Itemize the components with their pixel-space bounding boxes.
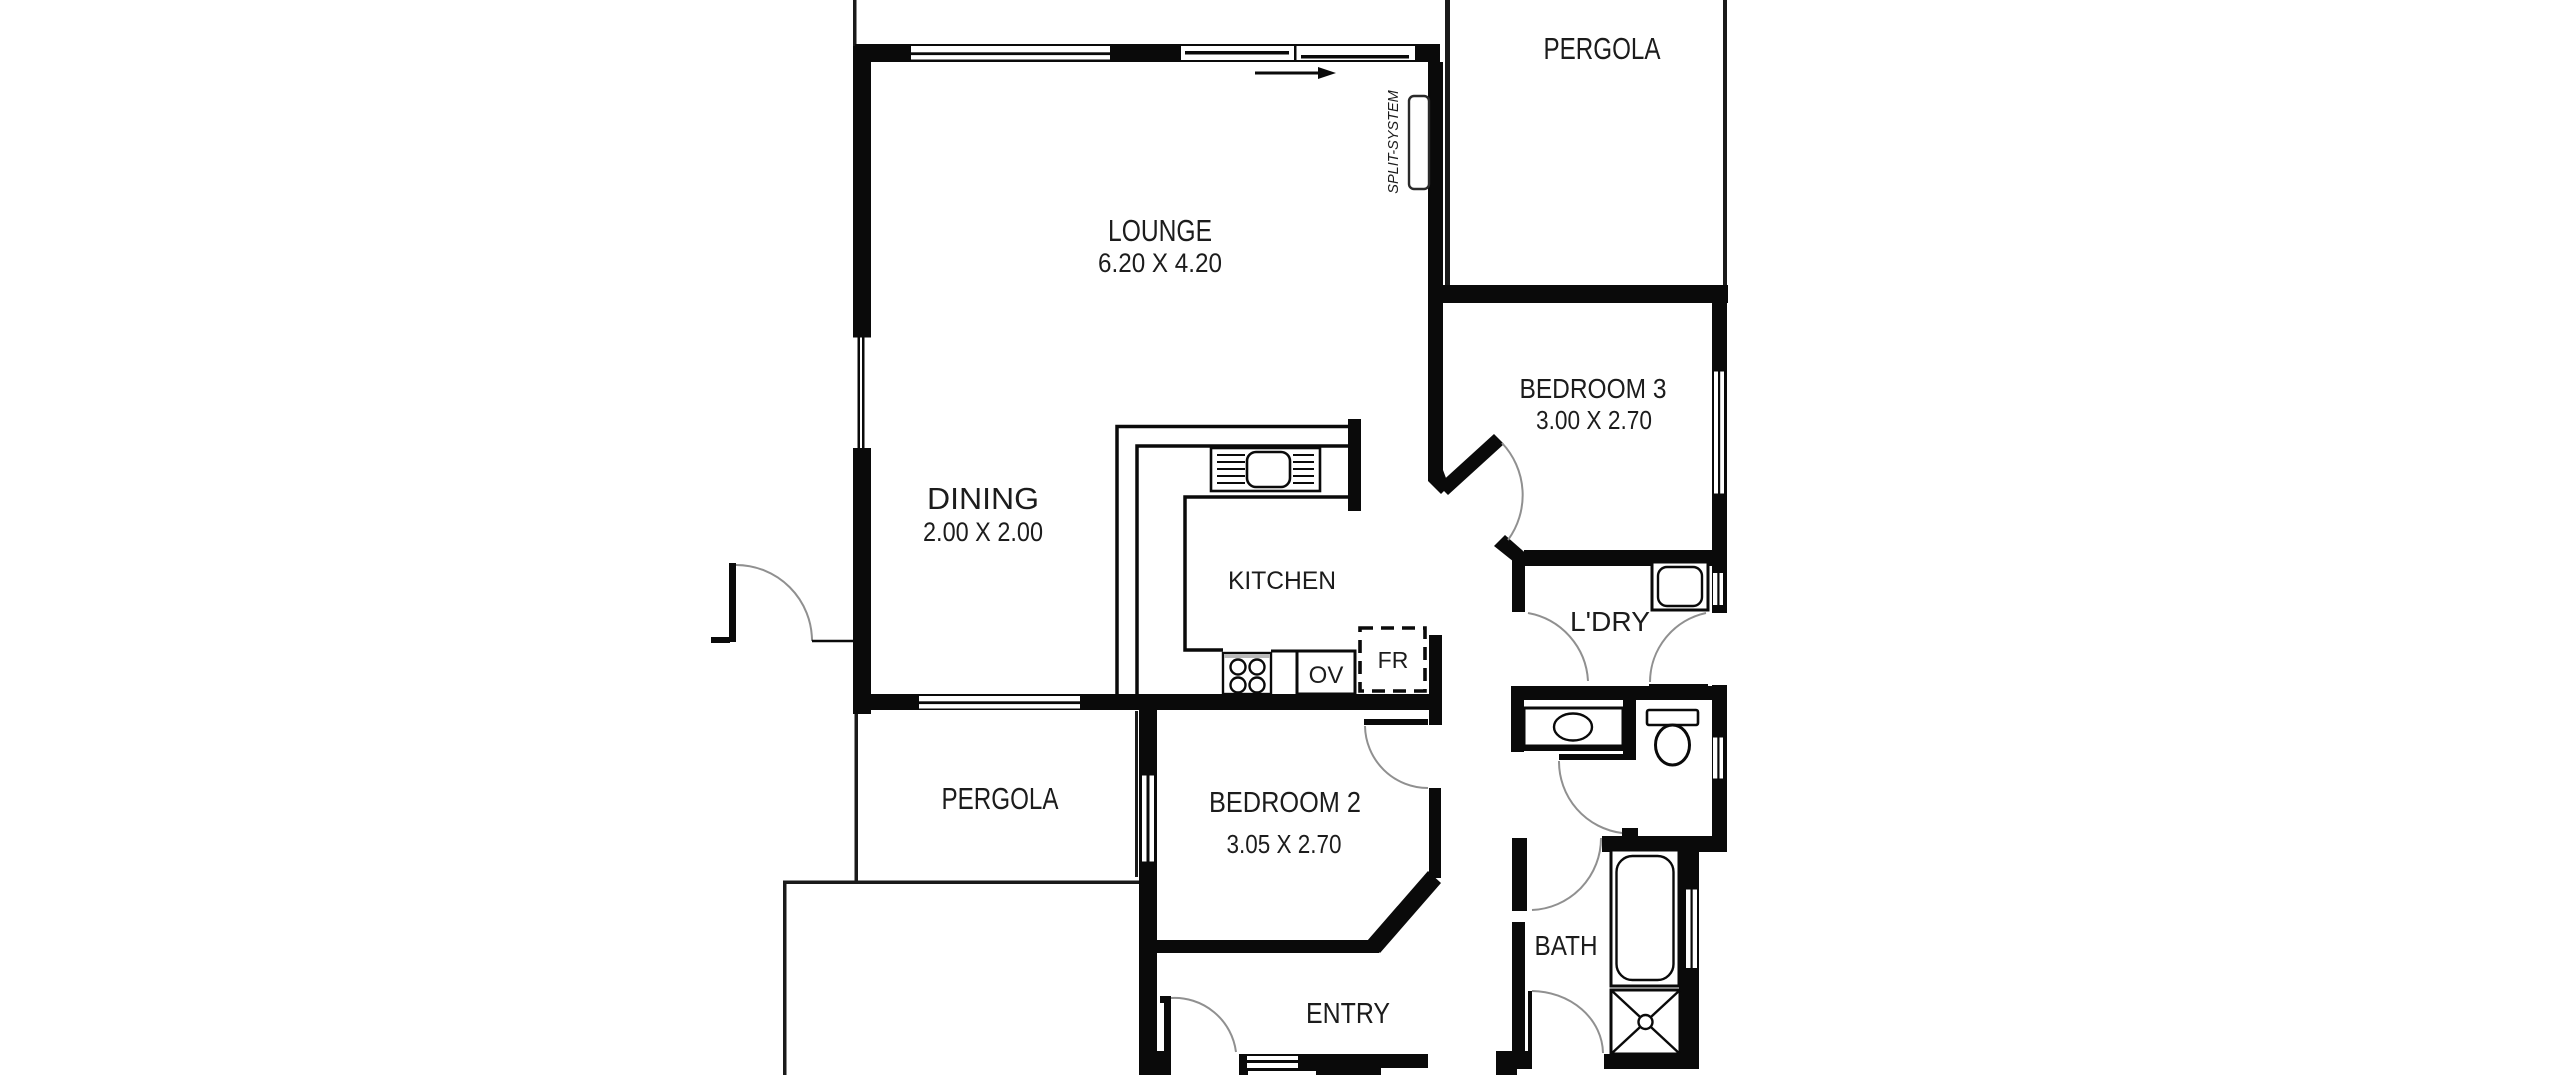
svg-text:BEDROOM 3: BEDROOM 3 bbox=[1520, 373, 1667, 404]
svg-text:DINING: DINING bbox=[927, 481, 1039, 516]
svg-text:KITCHEN: KITCHEN bbox=[1228, 567, 1336, 595]
svg-text:SPLIT-SYSTEM: SPLIT-SYSTEM bbox=[1386, 89, 1402, 193]
svg-text:3.00 X 2.70: 3.00 X 2.70 bbox=[1536, 407, 1652, 435]
svg-text:FR: FR bbox=[1378, 647, 1409, 673]
svg-text:LOUNGE: LOUNGE bbox=[1108, 213, 1212, 248]
svg-text:PERGOLA: PERGOLA bbox=[1544, 31, 1661, 66]
svg-text:OV: OV bbox=[1309, 662, 1344, 689]
svg-text:L'DRY: L'DRY bbox=[1570, 606, 1650, 637]
svg-text:2.00 X 2.00: 2.00 X 2.00 bbox=[923, 517, 1043, 547]
svg-text:6.20 X 4.20: 6.20 X 4.20 bbox=[1098, 248, 1222, 278]
svg-text:PERGOLA: PERGOLA bbox=[942, 781, 1059, 816]
svg-text:BATH: BATH bbox=[1535, 930, 1598, 961]
svg-text:3.05 X 2.70: 3.05 X 2.70 bbox=[1227, 829, 1342, 859]
svg-text:ENTRY: ENTRY bbox=[1306, 998, 1390, 1030]
svg-text:BEDROOM 2: BEDROOM 2 bbox=[1209, 787, 1361, 819]
